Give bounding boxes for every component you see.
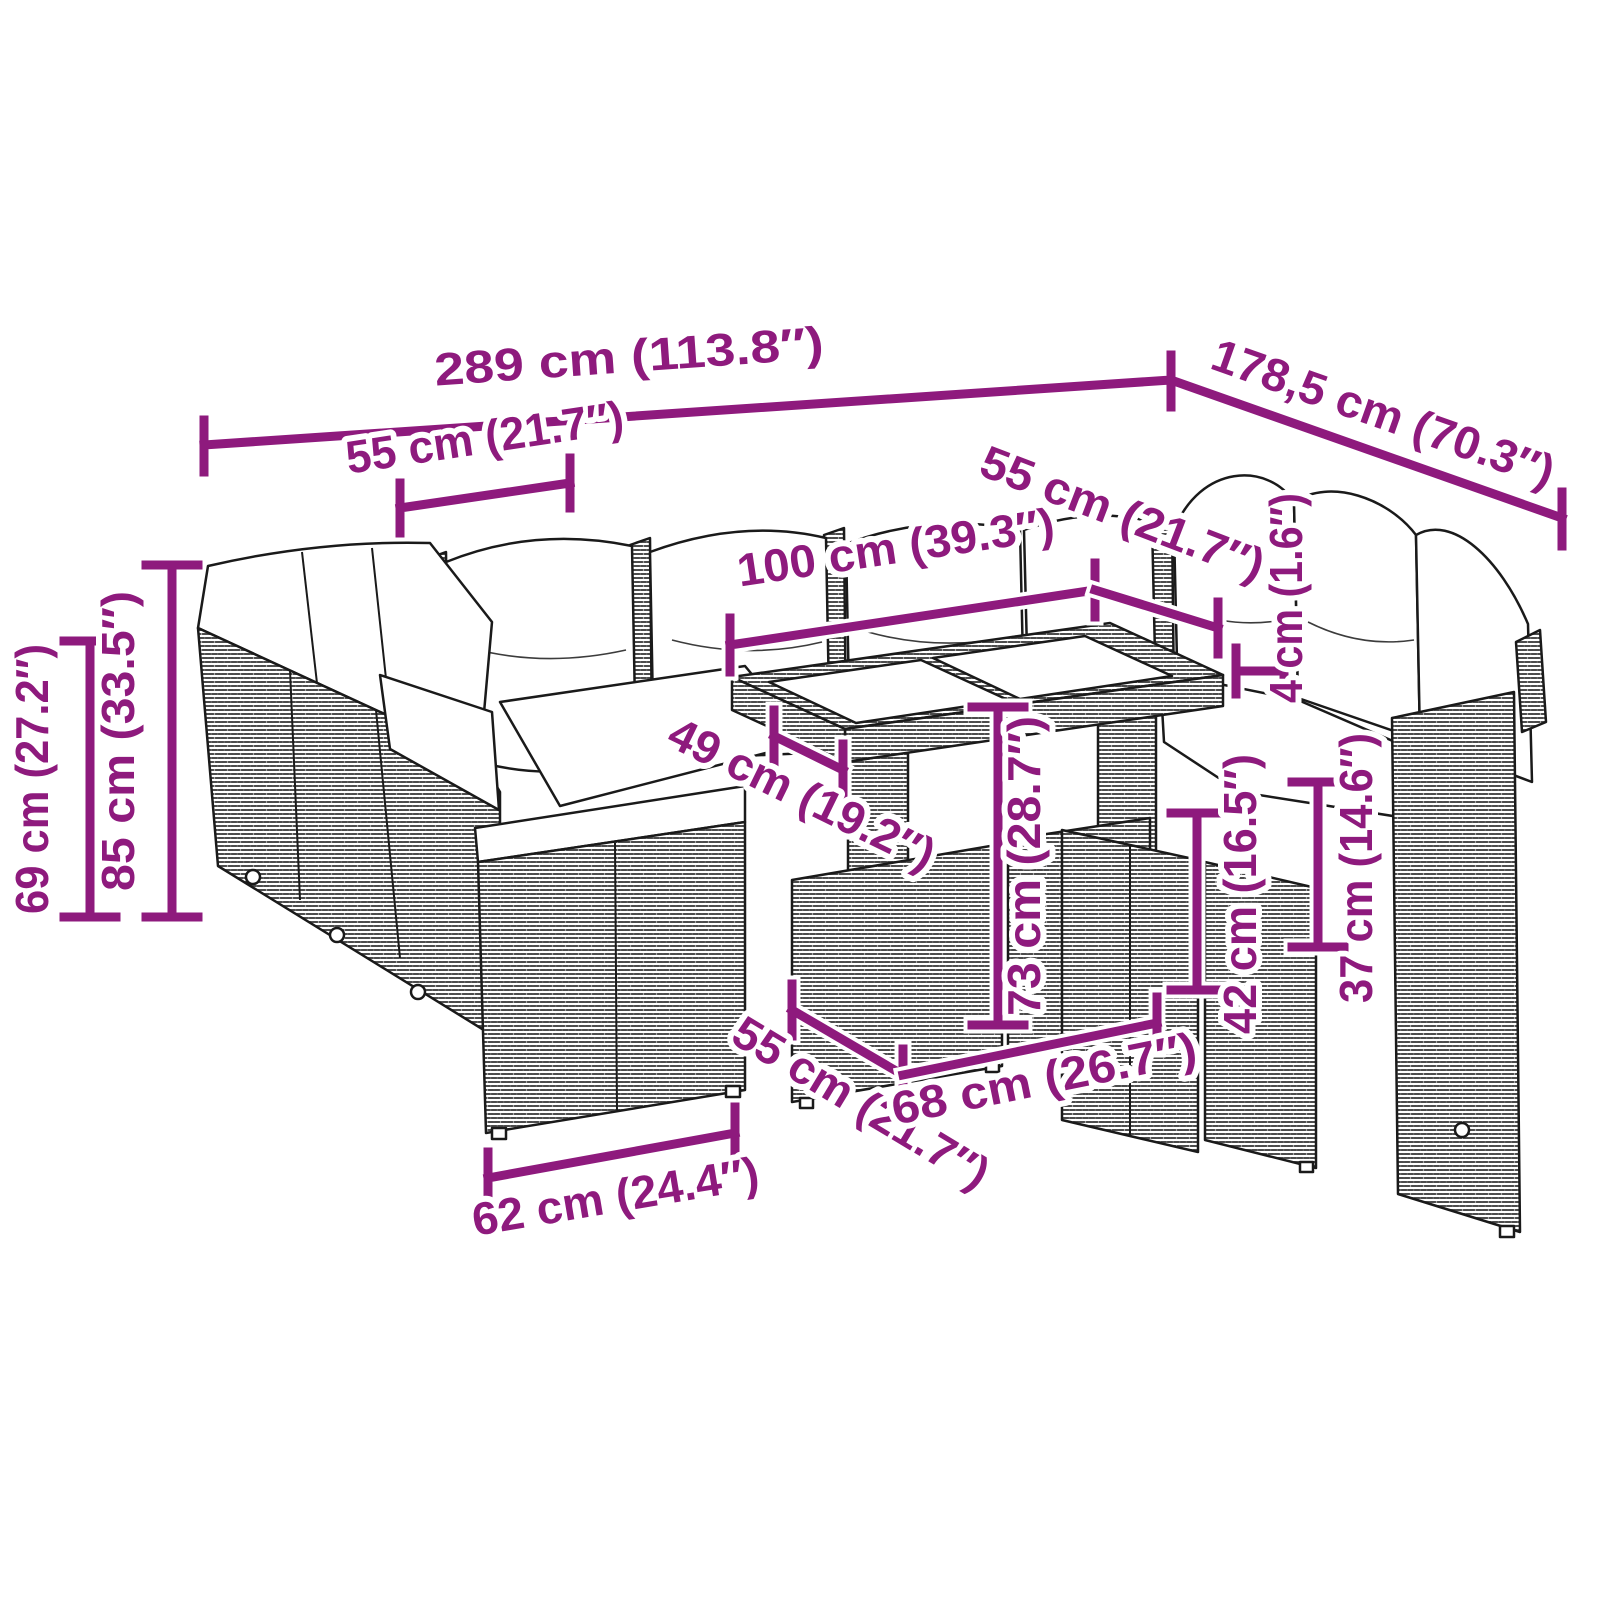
dim-back-cushion-width: 55 cm (21.7″) — [342, 391, 627, 533]
dim-backrest-height: 85 cm (33.5″) — [92, 565, 198, 917]
left-wing-back — [198, 543, 500, 1040]
dimension-diagram: 289 cm (113.8″) 178,5 cm (70.3″) 55 cm (… — [0, 0, 1600, 1600]
dim-arm-height-label: 69 cm (27.2″) — [6, 644, 58, 914]
dim-overall-width-label: 289 cm (113.8″) — [433, 316, 826, 395]
left-front-module — [475, 786, 745, 1139]
dim-backrest-height-label: 85 cm (33.5″) — [92, 591, 144, 891]
dim-cushion-thickness-label: 4 cm (1.6″) — [1260, 493, 1312, 703]
dim-table-height-label: 73 cm (28.7″) — [998, 716, 1050, 1016]
dim-ottoman-height-label: 42 cm (16.5″) — [1214, 754, 1266, 1034]
dim-seat-height-label: 37 cm (14.6″) — [1330, 733, 1382, 1003]
diagram-canvas: 289 cm (113.8″) 178,5 cm (70.3″) 55 cm (… — [0, 0, 1600, 1600]
dim-back-cushion-width-label: 55 cm (21.7″) — [342, 391, 627, 484]
